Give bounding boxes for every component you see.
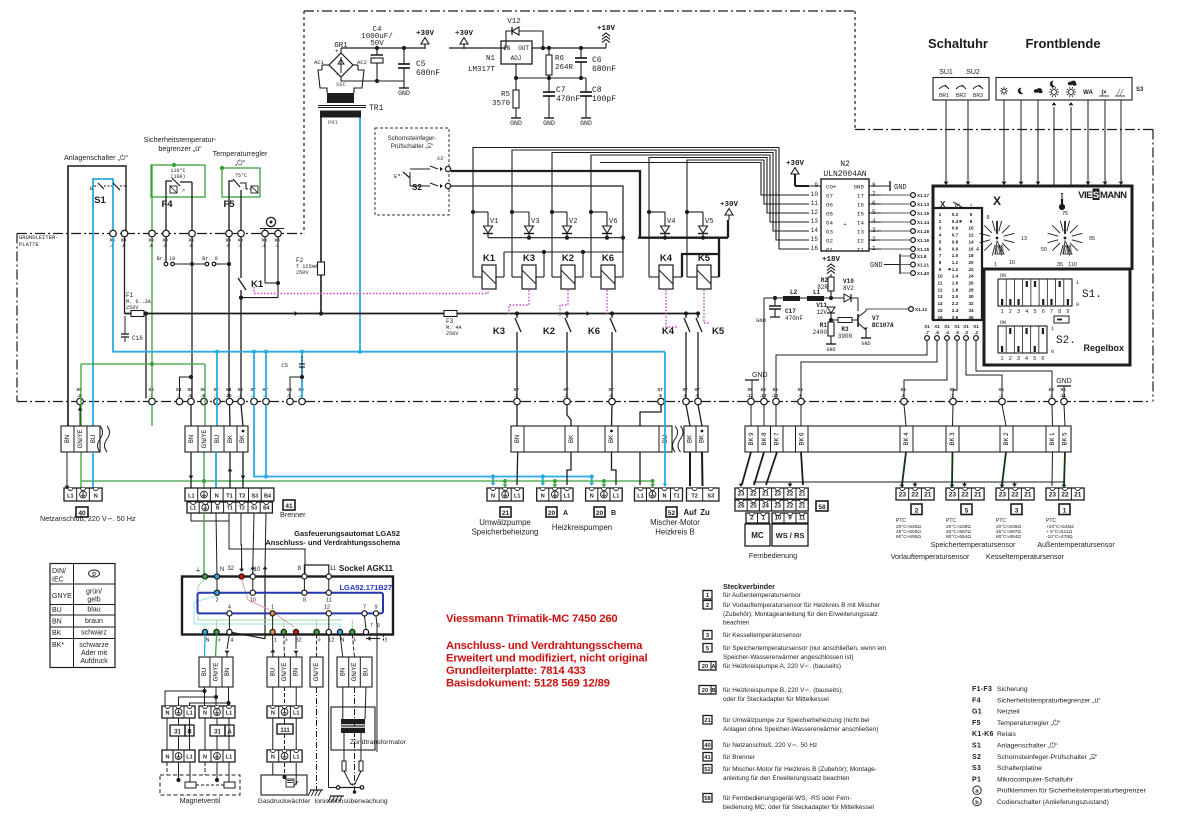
svg-text:begrenzer „ü“: begrenzer „ü“ <box>158 144 202 153</box>
svg-text:S3: S3 <box>251 494 258 500</box>
svg-text:X8: X8 <box>261 238 267 243</box>
svg-text:R3: R3 <box>841 326 849 333</box>
svg-text:18: 18 <box>968 253 974 258</box>
svg-text:X1.21: X1.21 <box>917 263 929 268</box>
svg-text:+: + <box>547 59 550 65</box>
svg-text:Frontblende: Frontblende <box>1025 36 1100 51</box>
svg-text:110: 110 <box>1068 262 1077 268</box>
svg-text:X3: X3 <box>437 156 443 162</box>
svg-text:Ader mit: Ader mit <box>81 650 107 657</box>
svg-text:1: 1 <box>994 262 997 268</box>
svg-text:95: 95 <box>1089 236 1095 242</box>
svg-text:23: 23 <box>738 492 745 498</box>
svg-text:N: N <box>206 638 210 644</box>
svg-text:LGA52.171B27: LGA52.171B27 <box>339 583 392 592</box>
svg-text:X1: X1 <box>963 324 969 329</box>
svg-text:12: 12 <box>811 209 819 216</box>
svg-text:35: 35 <box>1057 262 1063 268</box>
svg-text:.5: .5 <box>658 393 662 398</box>
svg-text:GND: GND <box>752 372 768 379</box>
svg-text:SU2: SU2 <box>966 69 980 76</box>
svg-text:BR3: BR3 <box>973 93 983 99</box>
svg-text:.8: .8 <box>189 243 193 248</box>
svg-text:5: 5 <box>965 508 969 515</box>
svg-text:+30V: +30V <box>786 160 805 168</box>
svg-text:OUT: OUT <box>518 45 529 52</box>
svg-text:2: 2 <box>1009 309 1012 315</box>
svg-text:20: 20 <box>702 688 708 694</box>
svg-text:N: N <box>271 711 275 717</box>
svg-text:26: 26 <box>738 504 745 510</box>
svg-text:Prüfklemmen für Sicherheitstem: Prüfklemmen für Sicherheitstemperaturbeg… <box>997 788 1147 795</box>
svg-text:28: 28 <box>968 287 974 292</box>
svg-text:N1: N1 <box>486 55 496 63</box>
svg-text:A: A <box>227 730 232 736</box>
svg-text:X8: X8 <box>187 387 193 392</box>
svg-text:I7: I7 <box>857 193 864 200</box>
svg-text:23: 23 <box>999 492 1007 499</box>
svg-text:2.0: 2.0 <box>952 294 959 299</box>
svg-text:80°C≈695Ω: 80°C≈695Ω <box>896 534 921 540</box>
svg-text:6: 6 <box>939 246 942 251</box>
svg-text:21: 21 <box>799 504 806 510</box>
svg-text:T2: T2 <box>239 494 245 500</box>
svg-text:21: 21 <box>502 510 510 517</box>
svg-text:GND: GND <box>580 120 592 127</box>
svg-text:470nF: 470nF <box>785 315 803 322</box>
svg-text:0.8: 0.8 <box>952 239 959 244</box>
svg-text:.11: .11 <box>1060 393 1066 398</box>
svg-text:L1: L1 <box>190 506 196 512</box>
svg-text:Erweitert und modifiziert, nic: Erweitert und modifiziert, nicht origina… <box>446 653 647 665</box>
svg-text:5: 5 <box>939 239 942 244</box>
svg-text:31: 31 <box>174 730 181 736</box>
svg-text:ON: ON <box>1000 320 1006 326</box>
svg-text:BK 5: BK 5 <box>1063 432 1069 446</box>
svg-text:R1: R1 <box>820 322 828 329</box>
svg-text:32: 32 <box>227 566 234 572</box>
svg-text:.5: .5 <box>901 393 905 398</box>
svg-text:für Mischer-Motor für Heizkrei: für Mischer-Motor für Heizkreis B (Zubeh… <box>723 766 877 773</box>
svg-text:1: 1 <box>271 605 274 611</box>
svg-text:21: 21 <box>1024 492 1032 499</box>
svg-text:S3: S3 <box>707 494 714 500</box>
svg-text:V2: V2 <box>569 218 577 226</box>
svg-text:BK: BK <box>569 435 575 443</box>
svg-text:╱╱: ╱╱ <box>1116 88 1124 96</box>
svg-text:K6: K6 <box>588 326 600 337</box>
svg-text:21: 21 <box>974 492 982 499</box>
svg-text:BK 9: BK 9 <box>749 432 755 446</box>
svg-text:I2: I2 <box>857 238 864 245</box>
svg-text:1.6: 1.6 <box>952 281 959 286</box>
svg-text:Schornsteinfeger-: Schornsteinfeger- <box>388 135 437 142</box>
svg-text:2: 2 <box>1009 356 1012 362</box>
svg-text:BK: BK <box>228 435 234 443</box>
svg-text:X1.16: X1.16 <box>917 238 929 243</box>
svg-text:⏚: ⏚ <box>316 637 322 644</box>
svg-text:X1.19: X1.19 <box>917 211 929 216</box>
svg-text:.10: .10 <box>772 393 779 398</box>
svg-text:TR1: TR1 <box>369 104 384 113</box>
svg-text:3: 3 <box>939 226 942 231</box>
svg-text:BK: BK <box>240 435 246 443</box>
svg-text:X1.18: X1.18 <box>917 229 929 234</box>
svg-text:D: D <box>92 572 96 578</box>
svg-text:.5: .5 <box>149 243 153 248</box>
svg-text:9: 9 <box>377 623 380 629</box>
svg-text:S1.: S1. <box>1082 289 1102 301</box>
svg-text:13: 13 <box>937 294 943 299</box>
svg-text:52: 52 <box>704 767 710 773</box>
svg-text:V5: V5 <box>705 218 713 226</box>
svg-text:.1: .1 <box>238 243 242 248</box>
svg-text:20: 20 <box>702 664 708 670</box>
svg-text:Anschluss- und Verdrahtungssch: Anschluss- und Verdrahtungsschema <box>446 640 643 652</box>
svg-text:.9: .9 <box>798 393 802 398</box>
svg-text:V6: V6 <box>609 218 617 226</box>
svg-text:+: + <box>370 53 373 59</box>
svg-text:100pF: 100pF <box>592 95 616 104</box>
svg-text:⏚: ⏚ <box>195 567 201 574</box>
svg-text:VIE: VIE <box>1078 190 1092 201</box>
svg-text:BK 2: BK 2 <box>1004 432 1010 446</box>
svg-text:.8: .8 <box>683 393 687 398</box>
svg-text:L1: L1 <box>813 289 821 296</box>
svg-text:Br. 9: Br. 9 <box>202 256 218 262</box>
svg-text:X5: X5 <box>900 387 906 392</box>
svg-text:V7: V7 <box>872 315 880 322</box>
svg-text:250V: 250V <box>446 331 459 337</box>
svg-text:11: 11 <box>799 516 806 522</box>
svg-text:6: 6 <box>1042 309 1045 315</box>
svg-text:2: 2 <box>939 219 942 224</box>
svg-text:F3: F3 <box>446 318 454 325</box>
svg-text:B4: B4 <box>264 494 272 500</box>
svg-text:K1-K6: K1-K6 <box>972 731 994 738</box>
svg-text:20: 20 <box>968 260 974 265</box>
svg-text:75: 75 <box>1062 211 1068 217</box>
svg-text:GN/YE: GN/YE <box>314 663 320 682</box>
svg-text:Zündtransformator: Zündtransformator <box>350 739 407 746</box>
svg-text:GND: GND <box>854 184 865 191</box>
svg-text:GRUNDLEITER-: GRUNDLEITER- <box>19 234 59 241</box>
svg-text:30: 30 <box>968 294 974 299</box>
svg-text:.3: .3 <box>964 330 968 335</box>
svg-text:X1: X1 <box>944 324 950 329</box>
svg-text:34: 34 <box>968 308 974 313</box>
svg-text:AC2: AC2 <box>357 59 367 66</box>
svg-text:16: 16 <box>1009 260 1015 266</box>
svg-text:(Zubehör); Montageanleitung fü: (Zubehör); Montageanleitung für den Erwe… <box>723 611 878 618</box>
svg-text:K4: K4 <box>662 326 675 337</box>
svg-text:grün/: grün/ <box>86 589 102 596</box>
svg-text:GNYE: GNYE <box>52 593 72 600</box>
svg-text:Relais: Relais <box>997 731 1016 738</box>
svg-text:7: 7 <box>1050 309 1053 315</box>
svg-text:+30V: +30V <box>720 201 739 209</box>
svg-text:O1: O1 <box>826 247 833 254</box>
svg-text:24: 24 <box>762 504 769 510</box>
svg-text:V4: V4 <box>667 218 675 226</box>
svg-text:PLATTE: PLATTE <box>19 241 40 248</box>
svg-text:Kesseltemperatursensor: Kesseltemperatursensor <box>986 552 1065 561</box>
svg-text:K5: K5 <box>698 253 711 264</box>
svg-text:GND: GND <box>756 317 767 324</box>
svg-text:für Außentemperatursensor: für Außentemperatursensor <box>723 592 802 599</box>
svg-text:111: 111 <box>280 728 290 734</box>
svg-text:4: 4 <box>976 247 979 253</box>
svg-text:1: 1 <box>1001 356 1004 362</box>
svg-text:Gasfeuerungsautomat LGA52: Gasfeuerungsautomat LGA52 <box>294 529 400 538</box>
svg-text:N: N <box>203 711 207 717</box>
svg-text:+30V: +30V <box>416 30 435 38</box>
svg-text:L1: L1 <box>293 711 299 717</box>
svg-text:C8: C8 <box>592 86 602 95</box>
svg-text:.10: .10 <box>225 393 232 398</box>
svg-text:1: 1 <box>939 212 942 217</box>
svg-text:.2: .2 <box>974 330 978 335</box>
svg-text:↗: ↗ <box>181 188 185 194</box>
svg-text:1: 1 <box>274 638 277 644</box>
svg-text:K2: K2 <box>562 253 574 264</box>
svg-text:braun: braun <box>85 618 103 625</box>
svg-text:ON: ON <box>1000 273 1006 279</box>
svg-text:X9: X9 <box>162 238 168 243</box>
svg-text:14: 14 <box>811 227 819 234</box>
svg-text:0.4: 0.4 <box>952 219 959 224</box>
svg-text:Speichertemperatursensor: Speichertemperatursensor <box>931 540 1016 549</box>
svg-text:X5: X5 <box>772 387 778 392</box>
svg-text:Sicherheitstempraturbegrenzer: Sicherheitstempraturbegrenzer „ü“ <box>997 697 1101 704</box>
svg-text:0: 0 <box>1076 302 1079 308</box>
svg-text:Netzanschluß, 220 V∽. 50 Hz: Netzanschluß, 220 V∽. 50 Hz <box>40 514 136 523</box>
svg-text:I4: I4 <box>857 220 864 227</box>
svg-text:.7: .7 <box>925 330 929 335</box>
svg-text:4: 4 <box>939 233 942 238</box>
svg-text:B: B <box>711 688 715 694</box>
svg-text:Auf: Auf <box>684 508 697 517</box>
svg-text:25: 25 <box>750 504 757 510</box>
svg-text:58: 58 <box>818 504 826 511</box>
svg-text:S3: S3 <box>251 506 257 512</box>
svg-text:bedienung MC; oder für Steckad: bedienung MC; oder für Steckadapter für … <box>723 804 874 811</box>
svg-text:1.2: 1.2 <box>952 267 959 272</box>
svg-text:10: 10 <box>937 274 943 279</box>
svg-text:GN/YE: GN/YE <box>282 663 288 682</box>
svg-text:10: 10 <box>968 226 974 231</box>
svg-text:PTC: PTC <box>896 518 906 524</box>
svg-text:22: 22 <box>787 504 794 510</box>
svg-text:V12: V12 <box>507 18 521 26</box>
svg-text:22: 22 <box>1061 492 1069 499</box>
svg-text:blau: blau <box>87 607 100 614</box>
svg-text:+: + <box>844 222 847 228</box>
svg-text:2.6: 2.6 <box>952 315 959 320</box>
svg-text:GND: GND <box>1056 378 1072 385</box>
svg-text:15: 15 <box>811 236 819 243</box>
svg-text:O4: O4 <box>826 220 833 227</box>
svg-text:BK 1: BK 1 <box>1050 432 1056 446</box>
svg-text:11: 11 <box>330 566 337 572</box>
svg-text:für Vorlauftemperatursensor fü: für Vorlauftemperatursensor für Heizkrei… <box>723 602 881 609</box>
svg-text:GN/YE: GN/YE <box>214 663 220 682</box>
svg-text:16: 16 <box>968 246 974 251</box>
svg-text:K5: K5 <box>712 326 725 337</box>
svg-text:16: 16 <box>937 315 943 320</box>
svg-text:0.9: 0.9 <box>952 246 959 251</box>
svg-text:GND: GND <box>543 120 555 127</box>
svg-text:8: 8 <box>1058 309 1061 315</box>
svg-text:SEC: SEC <box>336 81 347 88</box>
svg-text:X8: X8 <box>237 387 243 392</box>
svg-text:V3: V3 <box>531 218 539 226</box>
svg-text:.5: .5 <box>287 393 291 398</box>
svg-text:12V: 12V <box>816 309 827 316</box>
svg-text:BU: BU <box>52 607 62 614</box>
svg-text:Regelbox: Regelbox <box>1083 343 1124 353</box>
svg-text:Zu: Zu <box>700 508 710 517</box>
svg-text:1.1: 1.1 <box>952 260 959 265</box>
svg-text:PRI: PRI <box>328 119 338 126</box>
svg-text:N: N <box>203 755 207 761</box>
svg-text:N: N <box>166 711 170 717</box>
svg-text:gelb: gelb <box>87 597 100 604</box>
svg-text:I1: I1 <box>857 247 864 254</box>
svg-text:BK 7: BK 7 <box>774 432 780 446</box>
svg-text:IN: IN <box>503 45 511 52</box>
svg-text:22: 22 <box>911 492 919 499</box>
svg-text:O6: O6 <box>826 202 833 209</box>
svg-text:⏚: ⏚ <box>216 637 222 644</box>
svg-text:BK 4: BK 4 <box>904 432 910 446</box>
svg-text:2400: 2400 <box>813 329 828 336</box>
svg-text:A: A <box>563 510 568 517</box>
svg-text:GND: GND <box>894 184 907 192</box>
svg-text:BU: BU <box>663 435 669 443</box>
svg-text:264R: 264R <box>555 64 574 72</box>
svg-text:C7: C7 <box>556 86 566 95</box>
svg-text:für Umwälzpumpe zur Speicherbe: für Umwälzpumpe zur Speicherbeheizung (n… <box>723 717 869 724</box>
svg-text:Schornsteinfeger-Prüfschalter: Schornsteinfeger-Prüfschalter „⍄“ <box>997 754 1098 761</box>
svg-text:2.2: 2.2 <box>952 301 959 306</box>
svg-text:X1.8: X1.8 <box>917 254 927 259</box>
svg-text:R2: R2 <box>821 277 829 284</box>
svg-text:L1: L1 <box>293 755 299 761</box>
svg-text:0.2: 0.2 <box>952 212 959 217</box>
svg-text:5: 5 <box>1033 356 1036 362</box>
svg-text:L1: L1 <box>188 494 194 500</box>
svg-text:F1-F3: F1-F3 <box>972 686 992 693</box>
svg-text:.6: .6 <box>609 393 613 398</box>
svg-text:.6: .6 <box>188 393 192 398</box>
svg-text:Fernbedienung: Fernbedienung <box>749 551 797 560</box>
svg-text:26: 26 <box>968 281 974 286</box>
svg-text:N: N <box>541 494 545 500</box>
svg-text:.1: .1 <box>1049 393 1053 398</box>
svg-text:X1.12: X1.12 <box>915 307 927 312</box>
svg-text:X8: X8 <box>286 387 292 392</box>
svg-text:2: 2 <box>215 598 218 604</box>
svg-text:P1: P1 <box>972 776 981 783</box>
svg-text:BN: BN <box>65 435 71 443</box>
svg-text:21: 21 <box>1074 492 1082 499</box>
svg-text:3570: 3570 <box>492 100 511 108</box>
svg-text:1.8: 1.8 <box>952 287 959 292</box>
svg-text:F5: F5 <box>972 720 981 727</box>
svg-text:L1: L1 <box>637 494 643 500</box>
svg-text:10: 10 <box>811 191 819 198</box>
svg-text:.9: .9 <box>226 243 230 248</box>
svg-text:Anlagenschalter „⏻“: Anlagenschalter „⏻“ <box>997 742 1058 750</box>
svg-text:.9: .9 <box>122 243 126 248</box>
svg-text:1: 1 <box>1051 326 1054 332</box>
svg-text:K3: K3 <box>493 326 505 337</box>
svg-text:N: N <box>491 494 495 500</box>
svg-text:680nF: 680nF <box>592 65 616 74</box>
svg-text:Gasdruckwächter: Gasdruckwächter <box>258 798 312 805</box>
svg-text:1: 1 <box>1063 508 1067 515</box>
svg-text:BN: BN <box>294 668 300 676</box>
svg-text:12: 12 <box>324 605 330 611</box>
svg-text:K4: K4 <box>660 253 673 264</box>
svg-text:BK: BK <box>688 435 694 443</box>
svg-text:N: N <box>590 494 594 500</box>
svg-text:.13: .13 <box>760 393 767 398</box>
svg-text:BK 6: BK 6 <box>799 432 805 446</box>
svg-text:X1.15: X1.15 <box>917 247 929 252</box>
svg-text:IEC: IEC <box>52 577 64 584</box>
svg-text:21: 21 <box>762 492 769 498</box>
svg-text:9: 9 <box>939 267 942 272</box>
svg-text:K2: K2 <box>543 326 555 337</box>
svg-text:7: 7 <box>939 253 942 258</box>
svg-text:K1: K1 <box>483 253 496 264</box>
svg-text:MANN: MANN <box>1100 190 1127 201</box>
svg-text:X9: X9 <box>148 238 154 243</box>
svg-text:.7: .7 <box>177 393 181 398</box>
svg-text:.7: .7 <box>149 393 153 398</box>
svg-text:X8: X8 <box>188 238 194 243</box>
svg-text:Sicherheitstemperatur-: Sicherheitstemperatur- <box>144 135 217 144</box>
svg-text:L1: L1 <box>67 494 73 500</box>
svg-text:8V2: 8V2 <box>843 285 854 292</box>
svg-text:X7: X7 <box>657 387 663 392</box>
svg-text:8: 8 <box>939 260 942 265</box>
svg-text:22: 22 <box>787 492 794 498</box>
svg-text:C17: C17 <box>785 308 796 315</box>
svg-text:BK 8: BK 8 <box>762 432 768 446</box>
svg-text:Aufdruck: Aufdruck <box>80 658 108 665</box>
svg-text:4: 4 <box>230 638 233 644</box>
svg-text:7: 7 <box>363 605 366 611</box>
svg-text:1: 1 <box>1076 280 1079 286</box>
svg-text:X1: X1 <box>934 324 940 329</box>
svg-text:13: 13 <box>1021 236 1027 242</box>
svg-text:7: 7 <box>370 623 373 629</box>
svg-text:L1: L1 <box>226 711 232 717</box>
svg-text:.9: .9 <box>695 393 699 398</box>
svg-text:SU1: SU1 <box>939 69 953 76</box>
svg-text:12: 12 <box>937 287 943 292</box>
svg-text:1.0: 1.0 <box>952 253 959 258</box>
svg-text:F1: F1 <box>126 292 134 299</box>
svg-text:R5: R5 <box>501 91 511 99</box>
svg-text:X9: X9 <box>121 238 127 243</box>
svg-text:BU: BU <box>91 435 97 443</box>
svg-text:X8: X8 <box>176 387 182 392</box>
svg-text:L1: L1 <box>226 755 232 761</box>
